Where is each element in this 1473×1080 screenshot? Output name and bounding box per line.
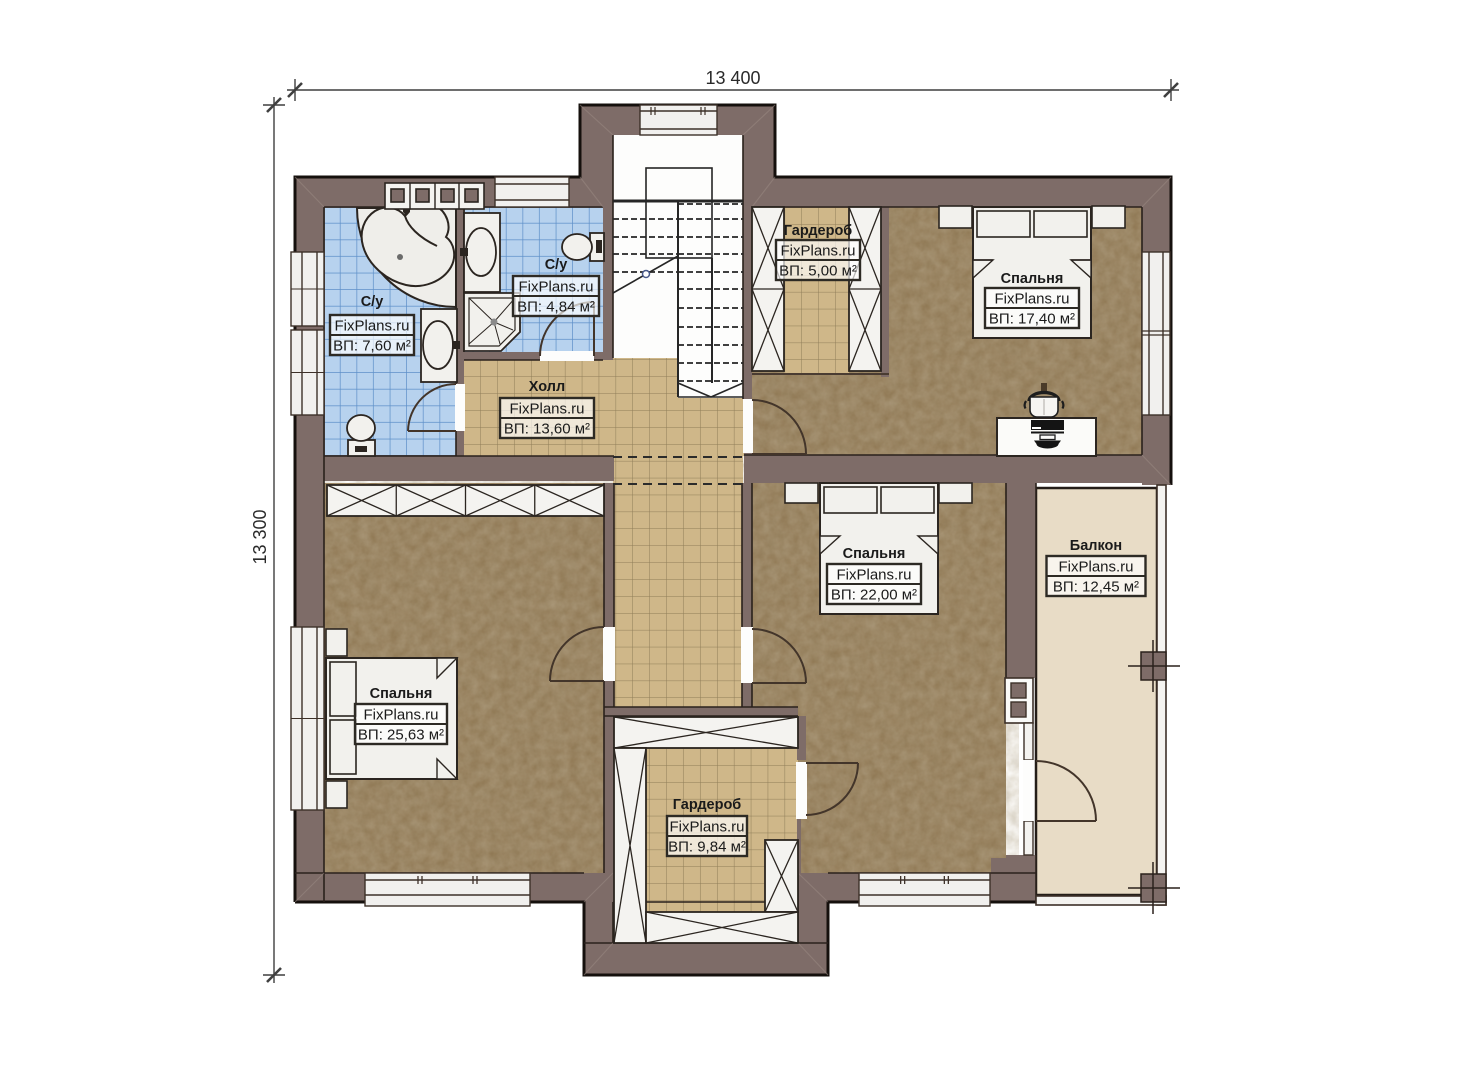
svg-text:Гардероб: Гардероб: [784, 223, 853, 239]
svg-text:ВП: 7,60 м²: ВП: 7,60 м²: [333, 338, 411, 355]
svg-text:ВП: 13,60 м²: ВП: 13,60 м²: [504, 421, 590, 438]
svg-text:Спальня: Спальня: [1001, 271, 1064, 287]
svg-text:С/у: С/у: [545, 257, 568, 273]
svg-text:Балкон: Балкон: [1070, 538, 1122, 554]
svg-text:FixPlans.ru: FixPlans.ru: [780, 243, 855, 260]
svg-text:Гардероб: Гардероб: [673, 797, 742, 813]
svg-text:Спальня: Спальня: [370, 686, 433, 702]
svg-text:FixPlans.ru: FixPlans.ru: [1058, 559, 1133, 576]
svg-text:ВП: 22,00 м²: ВП: 22,00 м²: [831, 587, 917, 604]
svg-text:FixPlans.ru: FixPlans.ru: [518, 279, 593, 296]
svg-text:ВП: 5,00 м²: ВП: 5,00 м²: [779, 263, 857, 280]
svg-text:FixPlans.ru: FixPlans.ru: [669, 819, 744, 836]
svg-text:FixPlans.ru: FixPlans.ru: [509, 401, 584, 418]
svg-text:Спальня: Спальня: [843, 546, 906, 562]
svg-text:С/у: С/у: [361, 294, 384, 310]
svg-text:ВП: 4,84 м²: ВП: 4,84 м²: [517, 299, 595, 316]
svg-text:FixPlans.ru: FixPlans.ru: [363, 707, 438, 724]
svg-text:Холл: Холл: [529, 379, 565, 395]
svg-text:ВП: 17,40 м²: ВП: 17,40 м²: [989, 311, 1075, 328]
svg-text:ВП: 9,84 м²: ВП: 9,84 м²: [668, 839, 746, 856]
svg-text:FixPlans.ru: FixPlans.ru: [334, 318, 409, 335]
svg-text:FixPlans.ru: FixPlans.ru: [994, 291, 1069, 308]
svg-text:FixPlans.ru: FixPlans.ru: [836, 567, 911, 584]
svg-text:ВП: 12,45 м²: ВП: 12,45 м²: [1053, 579, 1139, 596]
svg-text:ВП: 25,63 м²: ВП: 25,63 м²: [358, 727, 444, 744]
svg-text:13 400: 13 400: [705, 68, 760, 88]
svg-text:13 300: 13 300: [250, 509, 270, 564]
